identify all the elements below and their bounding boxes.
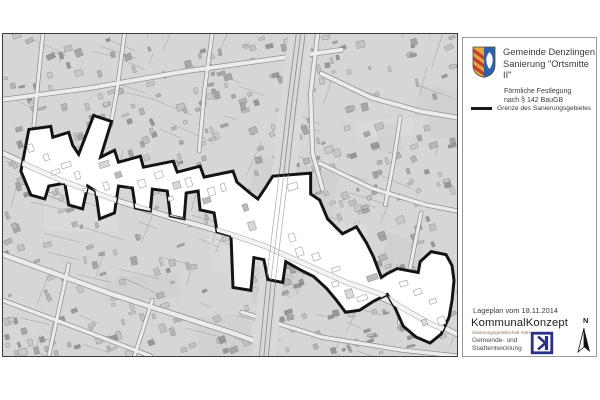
plan-title-line1: Gemeinde Denzlingen [503, 47, 596, 59]
plan-title-line2: Sanierung "Ortsmitte II" [503, 59, 596, 82]
legend-label: Grenze des Sanierungsgebietes [497, 105, 591, 112]
plan-subtitle: Förmliche Festlegung nach § 142 BauGB [504, 87, 571, 105]
company-description-line2: Stadtentwicklung [472, 345, 522, 353]
north-label: N [583, 316, 588, 325]
boundary-line-symbol [471, 107, 492, 110]
plan-sheet: Gemeinde Denzlingen Sanierung "Ortsmitte… [0, 0, 600, 400]
plan-title: Gemeinde Denzlingen Sanierung "Ortsmitte… [503, 47, 596, 82]
map-frame [2, 33, 458, 357]
kommunalkonzept-logo [530, 331, 554, 355]
company-subtitle: Sanierungsgesellschaft mbH [472, 330, 530, 335]
cadastral-map [3, 34, 457, 356]
company-description: Gemeinde- und Stadtentwicklung [472, 337, 522, 353]
company-description-line1: Gemeinde- und [472, 337, 522, 345]
plan-date: Lageplan vom 18.11.2014 [473, 306, 558, 315]
info-panel: Gemeinde Denzlingen Sanierung "Ortsmitte… [462, 37, 597, 357]
legend: Grenze des Sanierungsgebietes [471, 105, 597, 112]
company-name: KommunalKonzept [471, 317, 568, 329]
plan-subtitle-line1: Förmliche Festlegung [504, 87, 571, 96]
denzlingen-coat-of-arms-icon [472, 46, 496, 78]
north-arrow-icon [577, 327, 591, 354]
plan-subtitle-line2: nach § 142 BauGB [504, 96, 571, 105]
